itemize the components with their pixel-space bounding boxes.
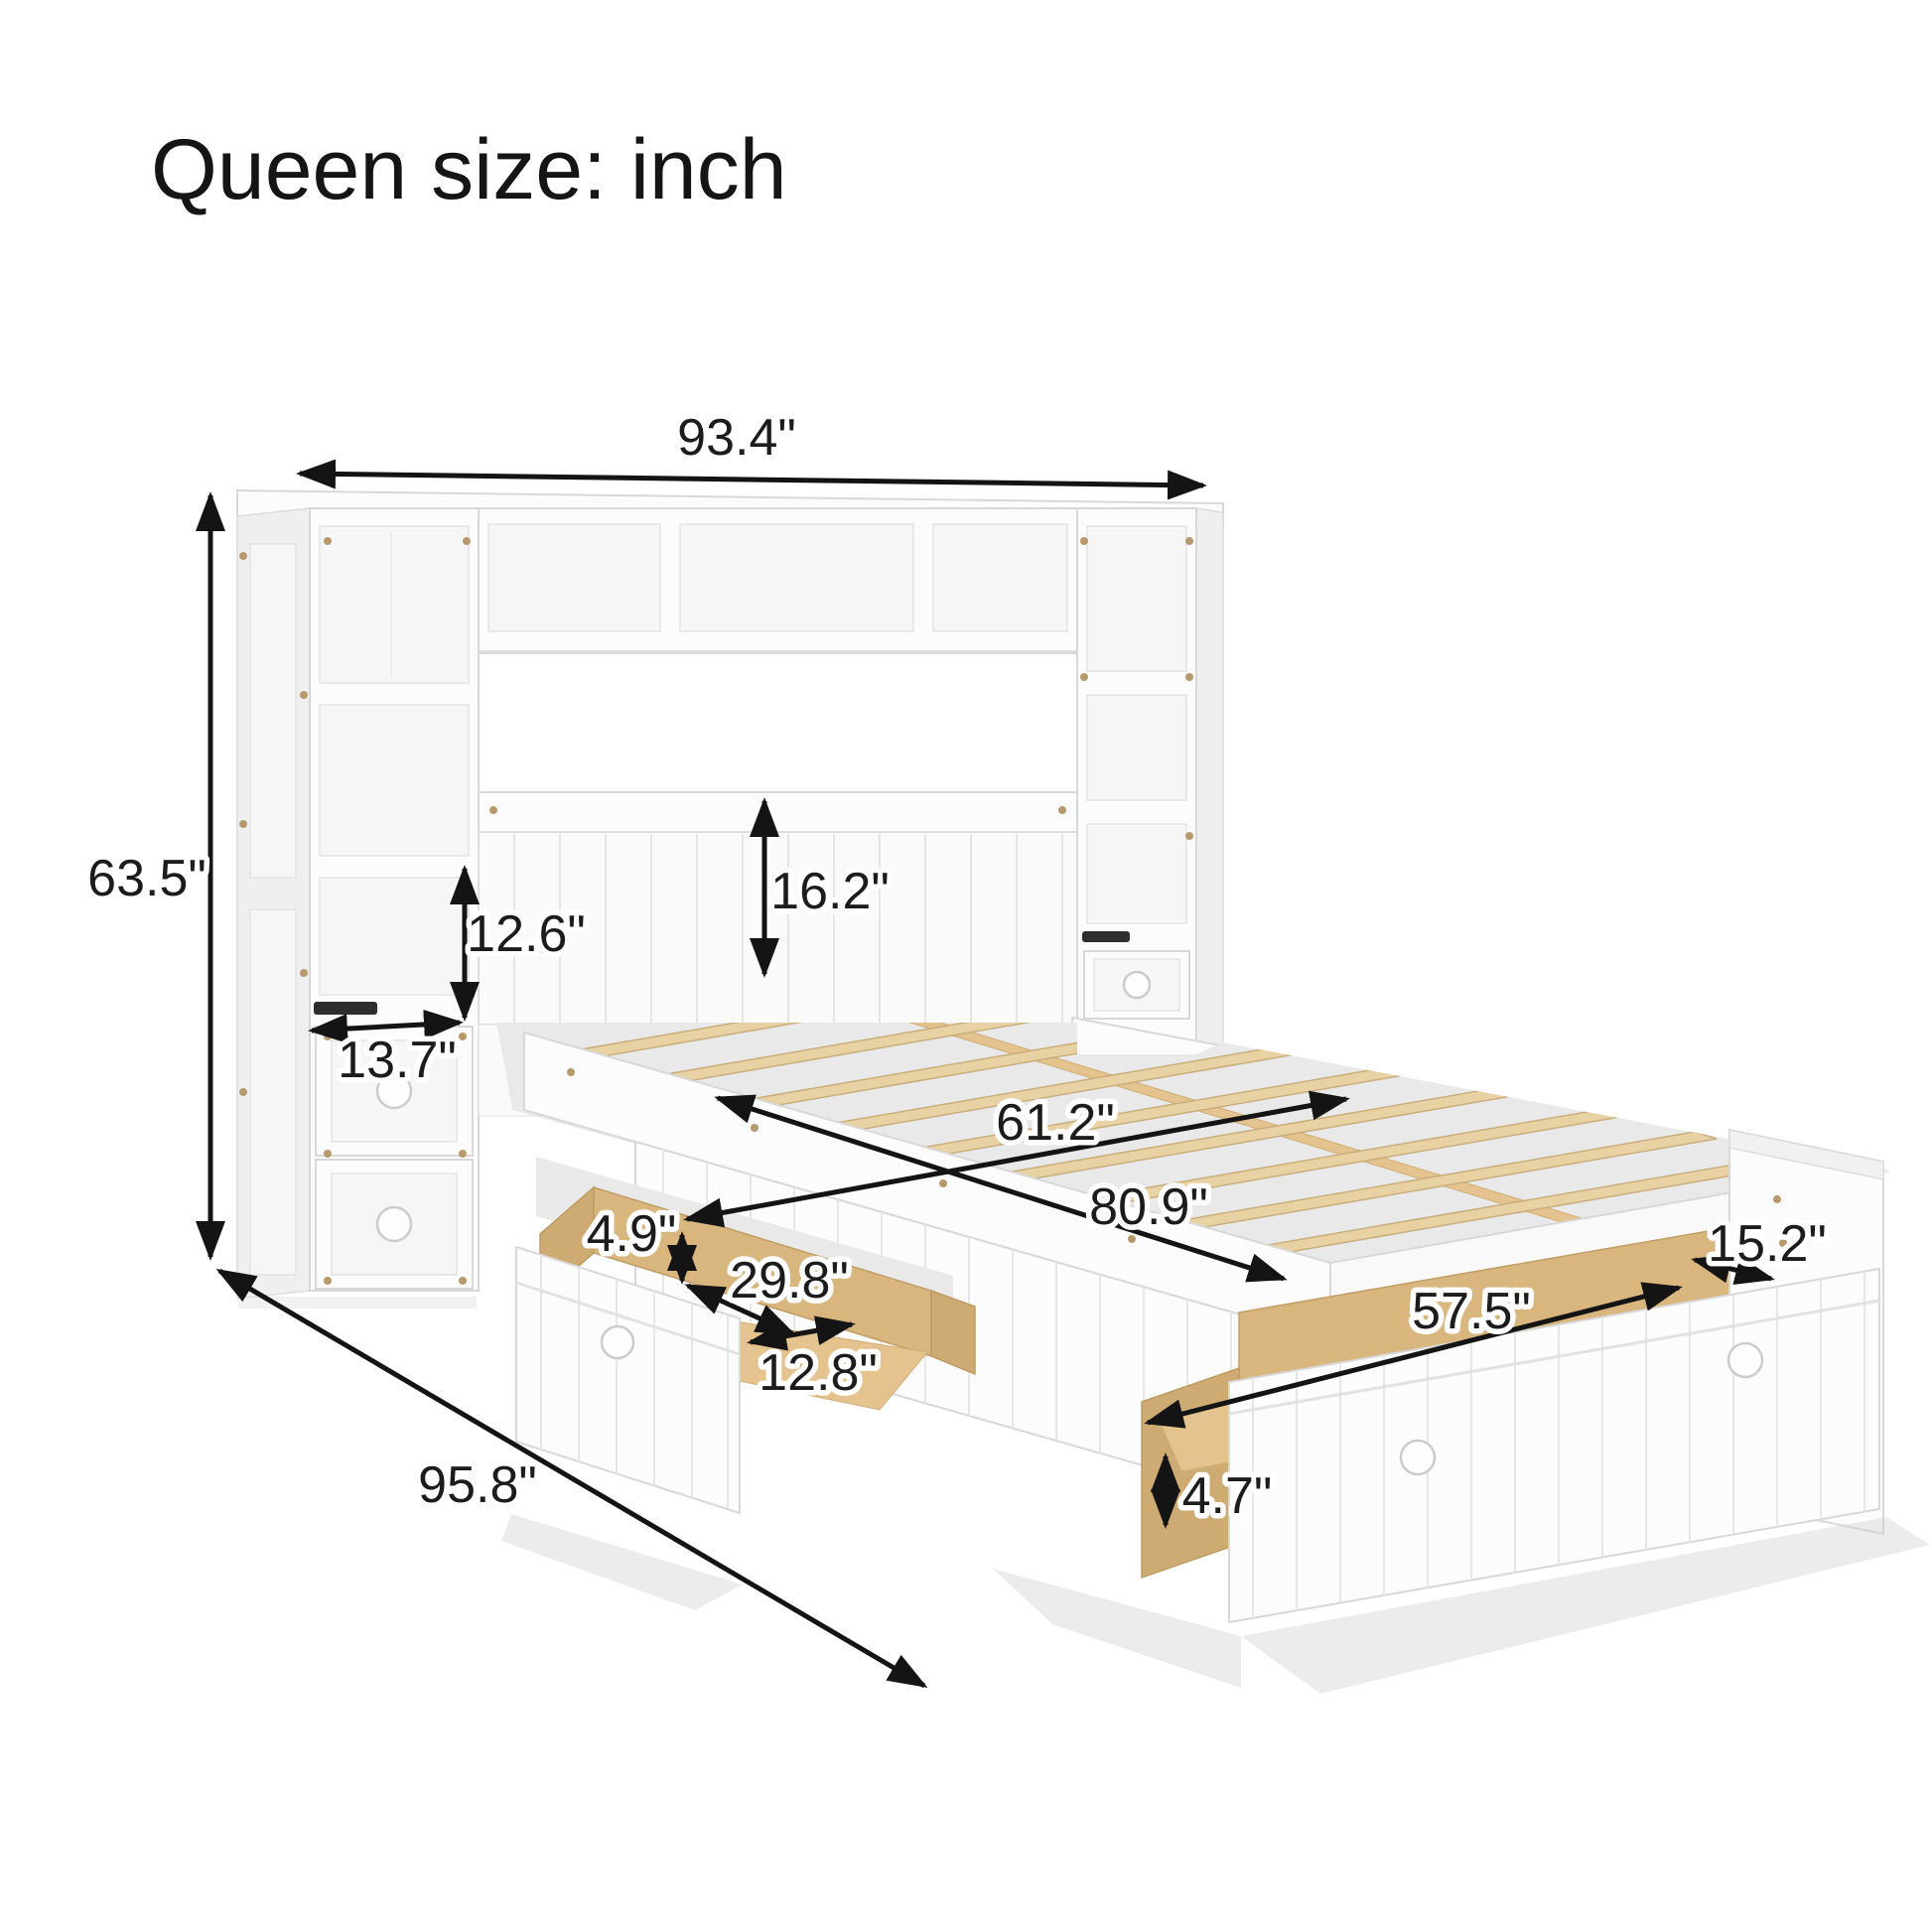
left-tower-cubby [320, 526, 469, 683]
dim-label-pier-shelf-width: 13.7" [338, 1032, 457, 1089]
drawer-knob [377, 1207, 411, 1241]
drawer-knob [1124, 972, 1150, 998]
dim-label-overall-width: 93.4" [677, 409, 796, 467]
dim-label-shelf-opening-height: 12.6" [467, 905, 586, 963]
headboard-top-rail [479, 792, 1077, 832]
bridge-cubby-3 [933, 524, 1067, 631]
dim-label-trundle-length: 57.5" [1412, 1283, 1531, 1340]
dim-label-trundle-depth: 15.2" [1708, 1215, 1827, 1273]
bridge-bookcase [479, 508, 1077, 653]
right-tower-cubby [1087, 526, 1186, 671]
left-tower-shelf-opening-2 [320, 878, 469, 995]
left-tower-shelf-opening-1 [320, 705, 469, 856]
drawer-knob [1728, 1343, 1762, 1377]
dim-label-trundle-height: 4.7" [1182, 1467, 1273, 1525]
dim-overall-height: 63.5" [87, 495, 210, 1257]
right-side-panel [1196, 508, 1223, 1054]
dim-trundle-depth: 15.2" [1695, 1215, 1827, 1279]
bed-dimension-diagram: Queen size: inch 93.4" 63.5" 12.6" 16.2"… [0, 0, 1932, 1932]
product-dimension-page: Queen size: inch 93.4" 63.5" 12.6" 16.2"… [0, 0, 1932, 1932]
dim-label-overall-depth: 95.8" [418, 1456, 537, 1514]
drawer-knob [602, 1326, 633, 1358]
dim-label-side-drawer-length: 29.8" [730, 1252, 849, 1310]
dim-overall-width: 93.4" [300, 409, 1203, 485]
right-tower-shelf-opening-2 [1087, 824, 1186, 923]
bridge-cubby-2 [680, 524, 913, 631]
left-tower-drawer-2 [316, 1160, 473, 1289]
right-tower-shelf-opening-1 [1087, 695, 1186, 800]
dim-trundle-height: 4.7" [1166, 1456, 1272, 1525]
dim-label-bed-length: 80.9" [1089, 1178, 1208, 1236]
usb-charging-station [314, 1002, 377, 1015]
right-tower-drawer [1084, 951, 1189, 1019]
dim-label-bed-width: 61.2" [996, 1094, 1115, 1152]
drawer-knob [1401, 1441, 1435, 1474]
page-title: Queen size: inch [151, 122, 787, 217]
dim-label-side-drawer-height: 4.9" [587, 1205, 677, 1263]
usb-charging-station-right [1082, 931, 1130, 942]
dim-label-headboard-height: 16.2" [770, 863, 890, 920]
dim-label-side-drawer-depth: 12.8" [759, 1344, 878, 1402]
left-side-panel-inset-bottom [250, 909, 296, 1275]
dim-label-overall-height: 63.5" [87, 850, 207, 907]
left-side-panel-inset-top [250, 544, 296, 878]
bridge-cubby-1 [488, 524, 660, 631]
right-pier-tower [1077, 508, 1223, 1054]
